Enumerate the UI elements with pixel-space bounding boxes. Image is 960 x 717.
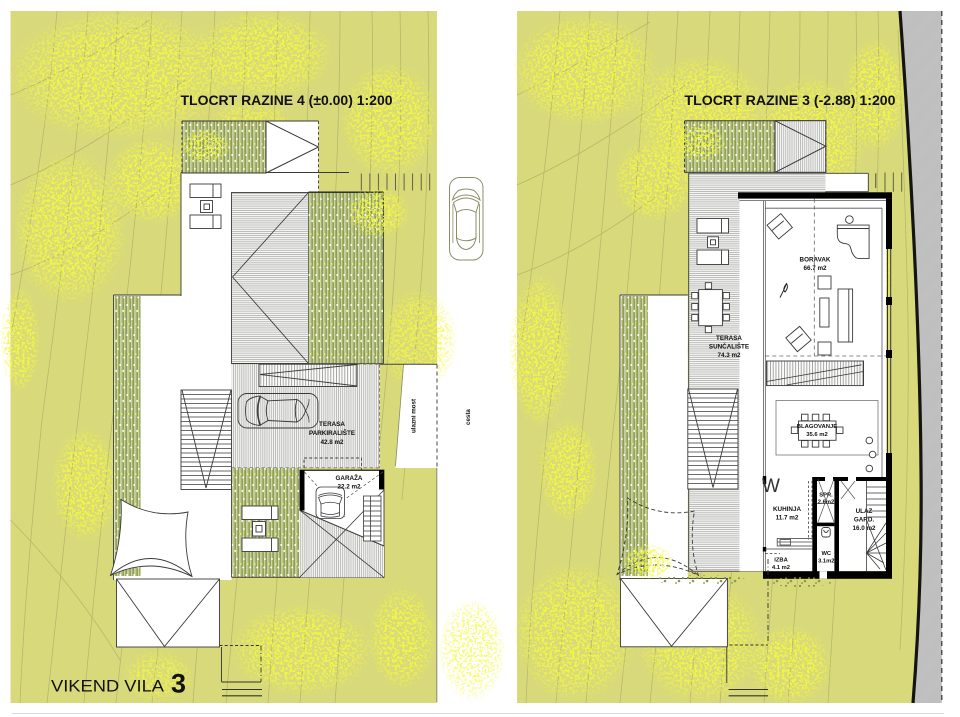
svg-text:TLOCRT RAZINE 3 (-2.88) 1:200: TLOCRT RAZINE 3 (-2.88) 1:200 [685,93,896,108]
svg-text:11.7 m2: 11.7 m2 [776,515,799,522]
svg-text:TERASA: TERASA [716,335,742,342]
svg-text:2.6m2: 2.6m2 [818,500,834,506]
svg-text:TERASA: TERASA [319,421,345,428]
svg-text:ULAZ: ULAZ [856,508,873,515]
svg-text:W: W [762,476,780,497]
svg-text:SUNČALIŠTE: SUNČALIŠTE [709,342,749,351]
svg-text:KUHINJA: KUHINJA [773,506,801,513]
svg-text:TLOCRT RAZINE 4 (±0.00) 1:200: TLOCRT RAZINE 4 (±0.00) 1:200 [181,93,393,108]
svg-text:4.1 m2: 4.1 m2 [772,565,790,571]
svg-text:cesta: cesta [465,409,472,425]
svg-text:74.3 m2: 74.3 m2 [717,352,741,359]
svg-text:GARD.: GARD. [854,517,875,524]
svg-text:3: 3 [171,669,186,699]
svg-text:16.0 m2: 16.0 m2 [852,525,876,532]
svg-text:GARAŽA: GARAŽA [336,473,363,482]
svg-text:22.2 m2: 22.2 m2 [337,484,361,491]
svg-text:WC: WC [821,551,831,557]
svg-text:PARKIRALIŠTE: PARKIRALIŠTE [309,428,355,437]
svg-text:66.7 m2: 66.7 m2 [803,265,827,272]
svg-text:BLAGOVANJE: BLAGOVANJE [797,424,838,430]
svg-text:IZBA: IZBA [774,558,788,564]
svg-text:SPR.: SPR. [819,493,833,499]
svg-text:35.6 m2: 35.6 m2 [806,432,828,438]
svg-text:ulazni most: ulazni most [411,399,418,433]
svg-text:VIKEND VILA: VIKEND VILA [51,678,164,696]
svg-text:3.1m2: 3.1m2 [818,559,834,565]
svg-text:42.8 m2: 42.8 m2 [320,439,344,446]
svg-text:BORAVAK: BORAVAK [800,257,831,264]
